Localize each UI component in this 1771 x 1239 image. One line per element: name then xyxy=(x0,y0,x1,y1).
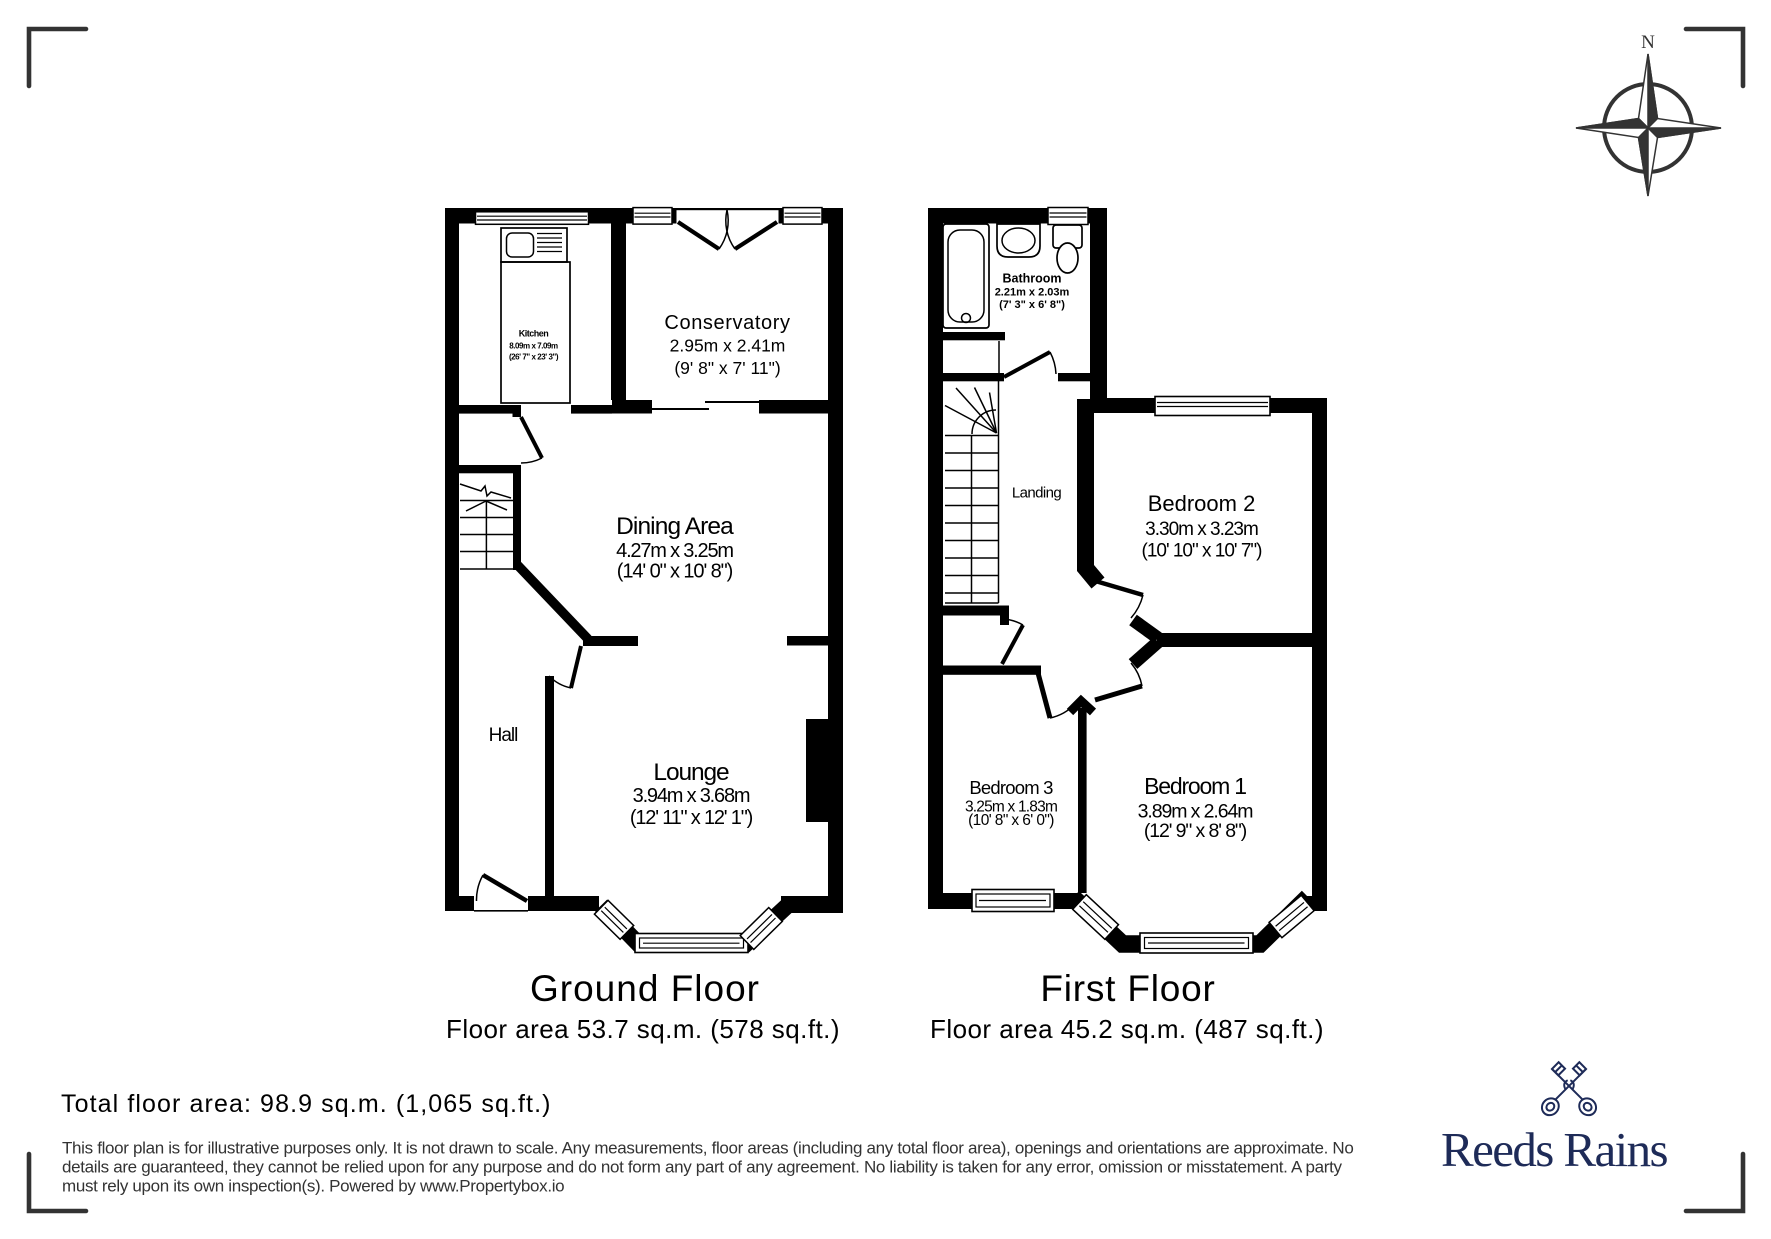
svg-text:(26' 7" x 23' 3"): (26' 7" x 23' 3") xyxy=(509,353,559,362)
svg-text:Conservatory: Conservatory xyxy=(664,312,790,334)
svg-text:N: N xyxy=(1641,32,1655,53)
svg-text:3.94m x 3.68m: 3.94m x 3.68m xyxy=(633,785,750,807)
svg-text:Bedroom 3: Bedroom 3 xyxy=(969,777,1053,798)
svg-text:Dining Area: Dining Area xyxy=(616,513,734,540)
svg-text:Reeds Rains: Reeds Rains xyxy=(1441,1122,1668,1177)
svg-text:2.95m x 2.41m: 2.95m x 2.41m xyxy=(670,336,786,356)
svg-text:Floor area 45.2 sq.m. (487 sq.: Floor area 45.2 sq.m. (487 sq.ft.) xyxy=(930,1014,1324,1044)
svg-text:3.30m x 3.23m: 3.30m x 3.23m xyxy=(1145,519,1258,540)
svg-text:(12' 11" x 12' 1"): (12' 11" x 12' 1") xyxy=(630,807,753,829)
svg-text:This floor plan is for illustr: This floor plan is for illustrative purp… xyxy=(62,1139,1353,1158)
svg-text:(10' 10" x 10' 7"): (10' 10" x 10' 7") xyxy=(1142,541,1263,562)
svg-text:(10' 8" x 6' 0"): (10' 8" x 6' 0") xyxy=(968,812,1054,829)
svg-text:4.27m x 3.25m: 4.27m x 3.25m xyxy=(616,540,733,562)
svg-text:2.21m x 2.03m: 2.21m x 2.03m xyxy=(995,287,1070,299)
svg-text:Hall: Hall xyxy=(489,725,518,746)
svg-text:Lounge: Lounge xyxy=(653,759,729,786)
svg-text:Bedroom 1: Bedroom 1 xyxy=(1144,773,1246,799)
svg-text:Floor area 53.7 sq.m. (578 sq.: Floor area 53.7 sq.m. (578 sq.ft.) xyxy=(446,1014,840,1044)
svg-text:must rely upon its own inspect: must rely upon its own inspection(s). Po… xyxy=(62,1177,564,1196)
svg-text:Bedroom 2: Bedroom 2 xyxy=(1148,491,1256,516)
svg-text:(7' 3" x 6' 8"): (7' 3" x 6' 8") xyxy=(999,299,1065,311)
svg-text:Kitchen: Kitchen xyxy=(519,329,549,339)
svg-text:8.09m x 7.09m: 8.09m x 7.09m xyxy=(509,342,558,351)
svg-text:(14' 0" x 10' 8"): (14' 0" x 10' 8") xyxy=(617,561,733,583)
svg-text:Total floor area: 98.9 sq.m. (: Total floor area: 98.9 sq.m. (1,065 sq.f… xyxy=(61,1090,552,1118)
svg-text:Bathroom: Bathroom xyxy=(1002,272,1061,286)
svg-text:(9' 8" x 7' 11"): (9' 8" x 7' 11") xyxy=(674,358,780,378)
svg-text:details are guaranteed, they c: details are guaranteed, they cannot be r… xyxy=(62,1158,1342,1177)
svg-text:Landing: Landing xyxy=(1012,485,1061,502)
svg-text:First Floor: First Floor xyxy=(1040,968,1215,1009)
svg-text:(12' 9" x 8' 8"): (12' 9" x 8' 8") xyxy=(1144,820,1247,842)
svg-text:Ground Floor: Ground Floor xyxy=(530,968,760,1009)
